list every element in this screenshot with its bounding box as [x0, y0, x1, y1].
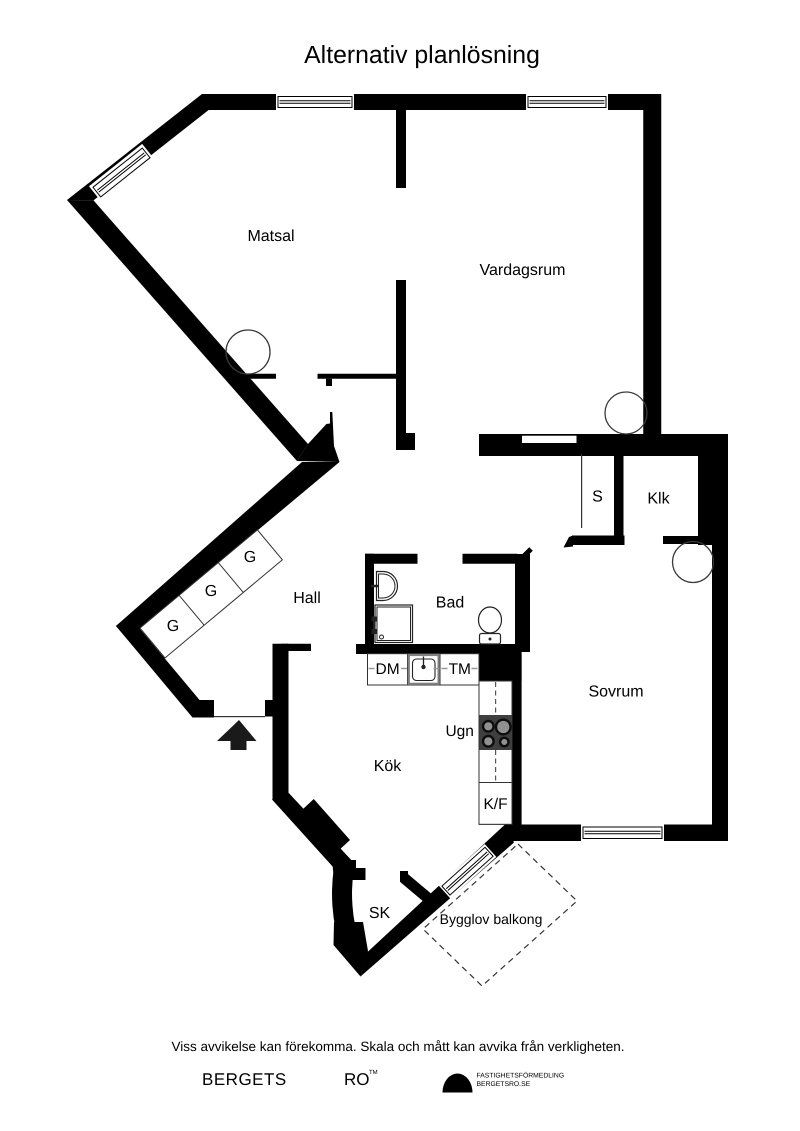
svg-text:BERGETS: BERGETS	[202, 1070, 287, 1089]
svg-text:Vardagsrum: Vardagsrum	[480, 262, 566, 279]
svg-text:Viss avvikelse kan förekomma.: Viss avvikelse kan förekomma. Skala och …	[172, 1039, 625, 1054]
svg-text:Bad: Bad	[436, 595, 464, 612]
svg-text:SK: SK	[369, 905, 391, 922]
svg-text:Sovrum: Sovrum	[588, 684, 643, 701]
svg-text:S: S	[592, 489, 603, 506]
svg-text:G: G	[205, 583, 217, 600]
svg-text:Matsal: Matsal	[247, 228, 294, 245]
svg-text:Kök: Kök	[374, 758, 403, 775]
svg-text:G: G	[167, 618, 179, 635]
svg-text:Bygglov balkong: Bygglov balkong	[440, 911, 543, 927]
svg-text:TM: TM	[369, 1069, 378, 1076]
svg-text:Klk: Klk	[647, 491, 670, 508]
svg-text:K/F: K/F	[483, 796, 507, 813]
svg-text:BERGETSRO.SE: BERGETSRO.SE	[477, 1081, 531, 1088]
svg-text:RO: RO	[344, 1070, 370, 1089]
svg-text:FASTIGHETSFÖRMEDLING: FASTIGHETSFÖRMEDLING	[477, 1072, 565, 1080]
svg-text:G: G	[244, 549, 256, 566]
svg-text:Ugn: Ugn	[445, 723, 473, 740]
svg-text:DM: DM	[376, 661, 400, 678]
svg-text:TM: TM	[449, 661, 471, 678]
svg-text:Hall: Hall	[293, 590, 321, 607]
svg-text:Alternativ planlösning: Alternativ planlösning	[304, 42, 540, 69]
